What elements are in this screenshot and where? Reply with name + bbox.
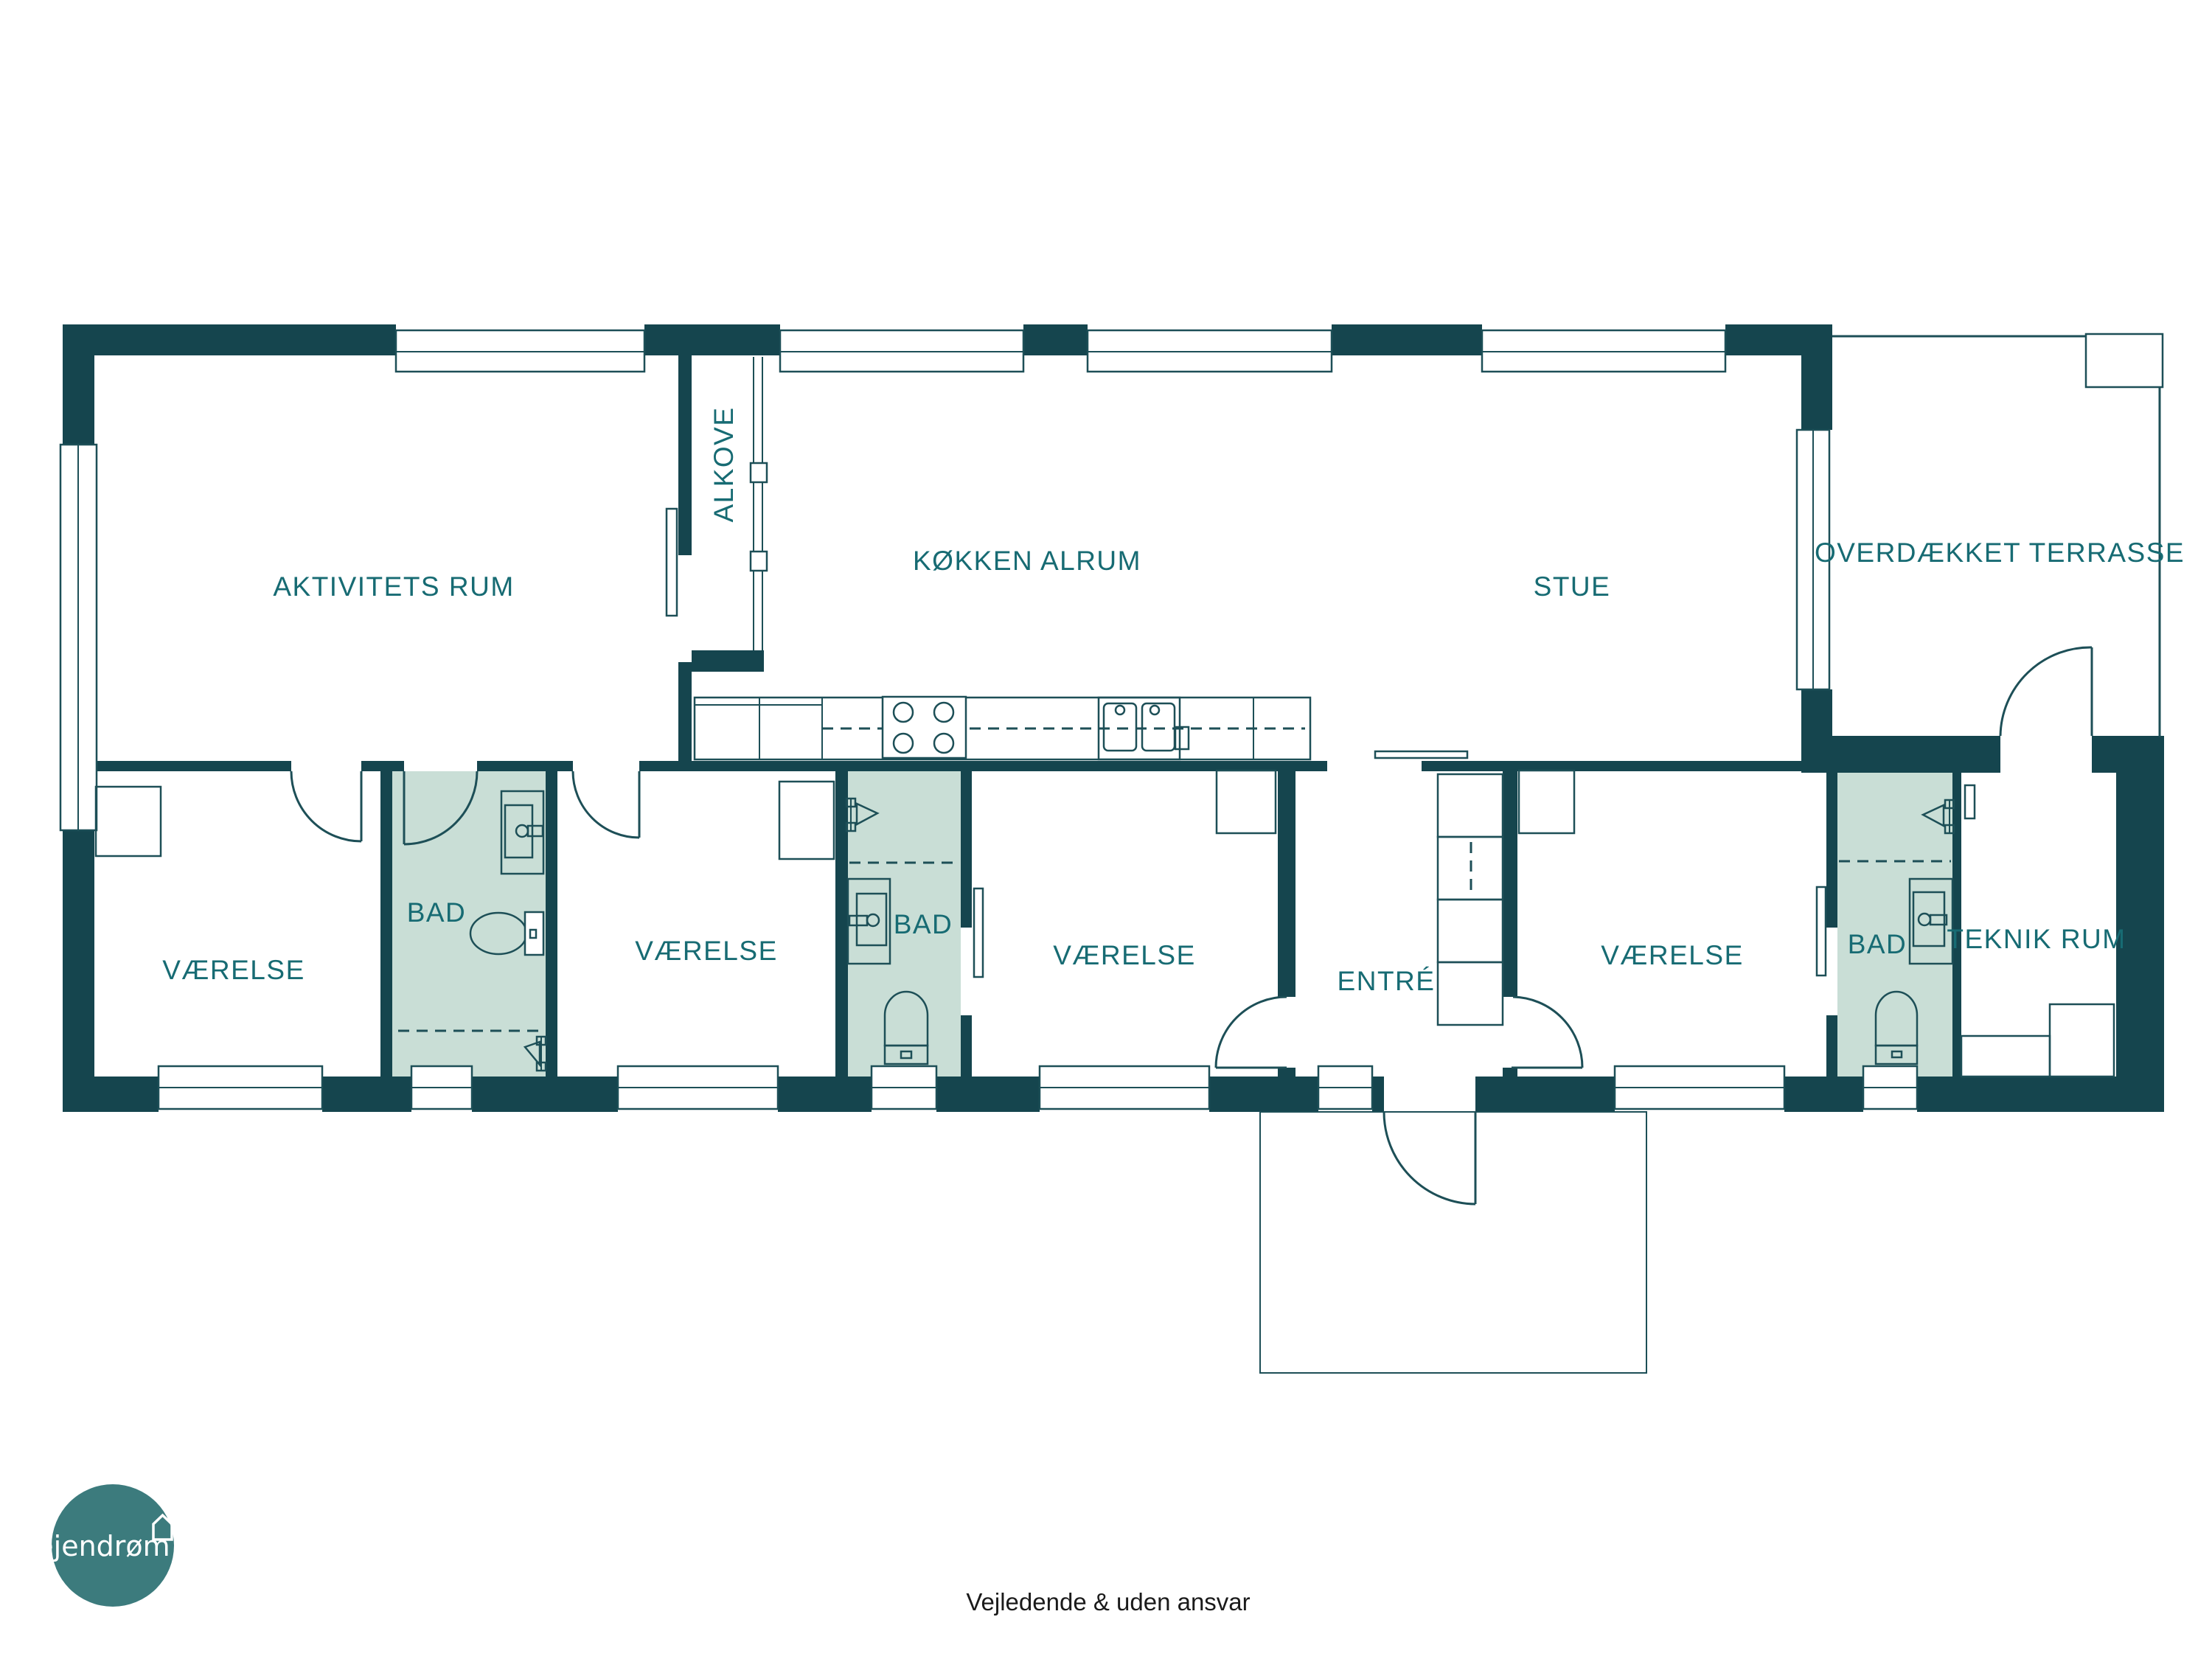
wall-segment: [2092, 736, 2164, 773]
wall-segment: [1503, 771, 1517, 997]
wardrobe: [1519, 771, 1574, 833]
wall-segment: [1372, 1077, 1384, 1112]
entrance-porch: [1260, 1112, 1646, 1373]
wall-segment: [1826, 1015, 1837, 1077]
wall-segment: [63, 830, 94, 1112]
wall-segment: [644, 324, 780, 355]
door: [1512, 997, 1582, 1068]
door: [1216, 997, 1287, 1068]
sink-board: [1175, 727, 1189, 749]
wall-segment: [380, 771, 392, 1077]
window: [159, 1066, 322, 1109]
room-label-kokken-alrum: KØKKEN ALRUM: [913, 546, 1141, 576]
kitchen-counter: [695, 697, 1310, 759]
wall-segment: [63, 324, 396, 355]
window: [1088, 330, 1332, 372]
wall-segment: [546, 771, 557, 1077]
disclaimer-text: Vejledende & uden ansvar: [966, 1588, 1250, 1615]
wall-segment: [1278, 771, 1295, 997]
wardrobe: [779, 782, 834, 859]
room-label-bad-2: BAD: [894, 909, 953, 939]
room-label-aktivitets-rum: AKTIVITETS RUM: [273, 571, 514, 602]
wall-segment: [63, 1077, 159, 1112]
room-label-bad-1: BAD: [407, 897, 467, 928]
wall-segment: [961, 771, 972, 928]
stove: [883, 697, 966, 758]
wall-segment: [1332, 324, 1482, 355]
room-label-bad-3: BAD: [1848, 929, 1907, 959]
wall-segment: [361, 761, 404, 771]
wall-segment: [1801, 324, 1832, 430]
wall-segment: [1826, 773, 1837, 928]
window: [1482, 330, 1725, 372]
window: [618, 1066, 778, 1109]
window: [1615, 1066, 1784, 1109]
room-label-overdaekket-terrasse: OVERDÆKKET TERRASSE: [1815, 538, 2185, 568]
wall-segment: [1503, 1068, 1517, 1077]
room-label-teknik-rum: TEKNIK RUM: [1947, 924, 2126, 954]
wardrobe: [1217, 771, 1276, 833]
room-label-stue: STUE: [1534, 571, 1611, 602]
bathroom-fills: [392, 771, 1952, 1077]
wall-segment: [1278, 1068, 1295, 1077]
wall-segment: [961, 1015, 972, 1077]
wardrobe: [96, 787, 161, 856]
window: [1040, 1066, 1209, 1109]
wall-segment: [1023, 324, 1088, 355]
room-label-vaerelse-4: VÆRELSE: [1601, 940, 1744, 970]
toilet-tank: [525, 912, 543, 955]
room-label-vaerelse-1: VÆRELSE: [162, 955, 305, 985]
room-label-alkove: ALKOVE: [709, 406, 739, 522]
wall-segment: [678, 662, 692, 761]
brand-logo: ejendrøm: [36, 1484, 174, 1607]
window: [60, 445, 97, 830]
windows: [60, 330, 1917, 1109]
wall-segment: [936, 1077, 1040, 1112]
entrance-door: [1384, 1112, 1475, 1204]
terrace-outline: [1832, 334, 2163, 737]
window: [1863, 1066, 1917, 1109]
wall-segment: [778, 1077, 872, 1112]
wall-segment: [63, 324, 94, 445]
wall-segment: [1209, 1077, 1318, 1112]
room-label-vaerelse-3: VÆRELSE: [1053, 940, 1196, 970]
wall-segment: [94, 761, 291, 771]
sliding-door: [974, 888, 983, 977]
window: [411, 1066, 472, 1109]
faucet-icon: [1150, 706, 1159, 714]
alkove-partition: [751, 357, 767, 650]
wall-segment: [835, 771, 848, 1077]
wall-segment: [477, 761, 573, 771]
sliding-door: [1817, 887, 1826, 975]
window: [396, 330, 644, 372]
wall-segment: [322, 1077, 411, 1112]
partition-handle: [751, 552, 767, 571]
wall-segment: [678, 355, 692, 555]
faucet-icon: [1116, 706, 1124, 714]
opening-threshold: [1375, 751, 1467, 758]
partition-handle: [751, 463, 767, 482]
room-label-entre: ENTRÉ: [1338, 966, 1436, 996]
logo-text: ejendrøm: [36, 1530, 170, 1562]
wall-segment: [1475, 1077, 1615, 1112]
window: [1318, 1066, 1372, 1109]
sliding-door: [667, 509, 677, 616]
window: [872, 1066, 936, 1109]
floorplan-canvas: AKTIVITETS RUM ALKOVE KØKKEN ALRUM STUE …: [0, 0, 2212, 1659]
wall-segment: [472, 1077, 618, 1112]
window: [780, 330, 1023, 372]
wall-segment: [692, 650, 764, 672]
terrace-corner-post: [2086, 334, 2163, 387]
wall-segment: [1422, 761, 1801, 771]
entre-cabinets: [1438, 774, 1503, 1025]
door: [573, 771, 639, 838]
room-label-vaerelse-2: VÆRELSE: [635, 936, 778, 966]
wall-segment: [1801, 736, 2000, 773]
door: [291, 771, 361, 841]
terrace-door: [2000, 647, 2092, 736]
wall-segment: [1784, 1077, 1863, 1112]
